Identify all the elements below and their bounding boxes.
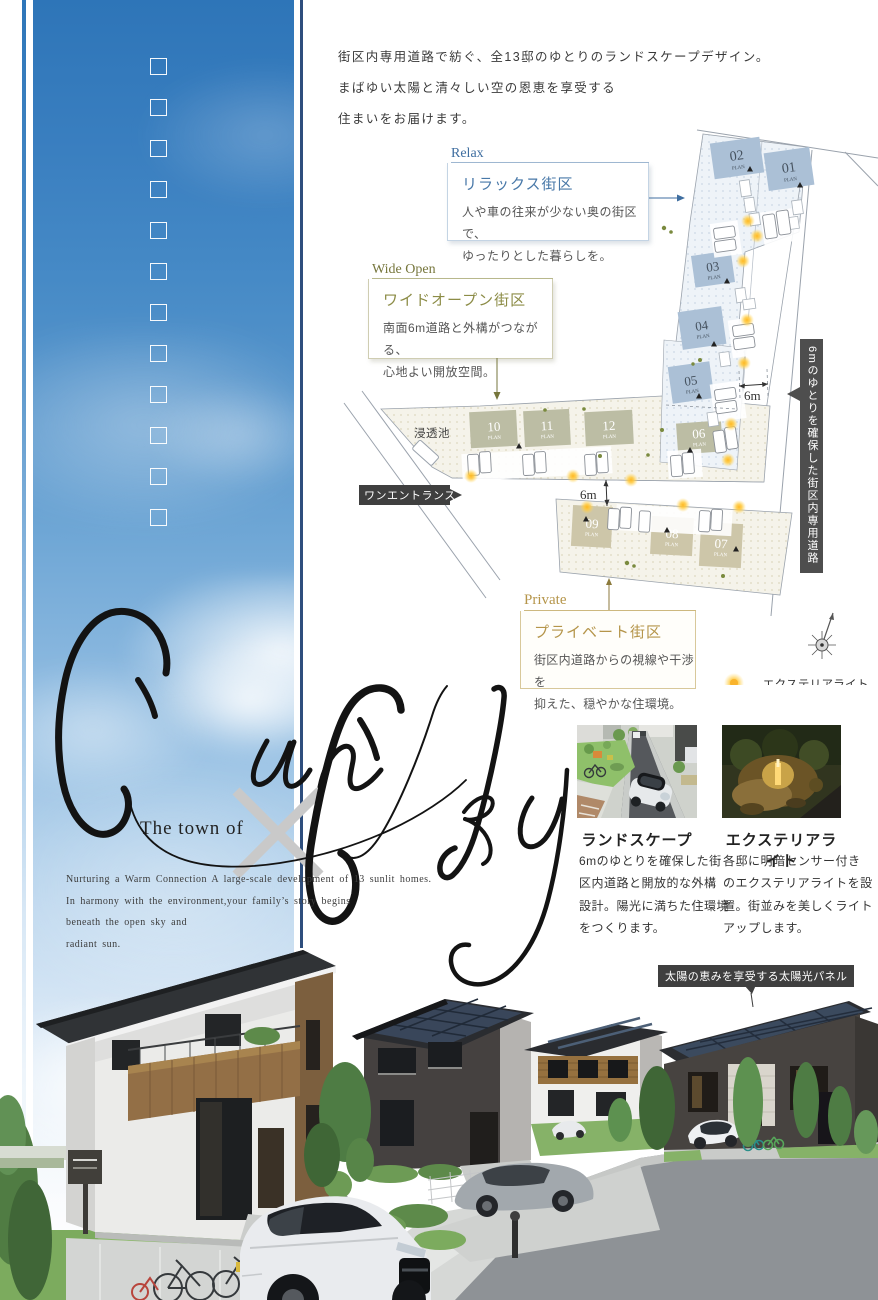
- svg-text:04: 04: [694, 317, 709, 334]
- svg-text:PLAN: PLAN: [693, 443, 707, 449]
- svg-text:11: 11: [540, 418, 553, 434]
- svg-text:06: 06: [692, 426, 707, 442]
- svg-text:PLAN: PLAN: [665, 543, 679, 549]
- svg-text:01: 01: [781, 160, 797, 177]
- svg-text:…エクステリアライト: …エクステリアライト: [751, 678, 869, 685]
- svg-text:07: 07: [714, 536, 728, 552]
- svg-text:PLAN: PLAN: [488, 436, 502, 442]
- svg-text:03: 03: [705, 258, 720, 275]
- svg-text:浸透池: 浸透池: [414, 427, 450, 440]
- svg-text:02: 02: [729, 148, 745, 165]
- svg-text:6m: 6m: [580, 487, 597, 502]
- svg-text:PLAN: PLAN: [603, 435, 617, 441]
- svg-text:PLAN: PLAN: [541, 435, 555, 441]
- svg-text:PLAN: PLAN: [585, 533, 599, 539]
- svg-text:09: 09: [585, 516, 599, 532]
- svg-text:ワンエントランス: ワンエントランス: [364, 490, 456, 502]
- svg-text:05: 05: [683, 372, 698, 389]
- svg-text:PLAN: PLAN: [714, 553, 728, 559]
- svg-text:10: 10: [487, 419, 501, 435]
- svg-text:6m: 6m: [744, 388, 761, 403]
- svg-text:12: 12: [602, 418, 616, 434]
